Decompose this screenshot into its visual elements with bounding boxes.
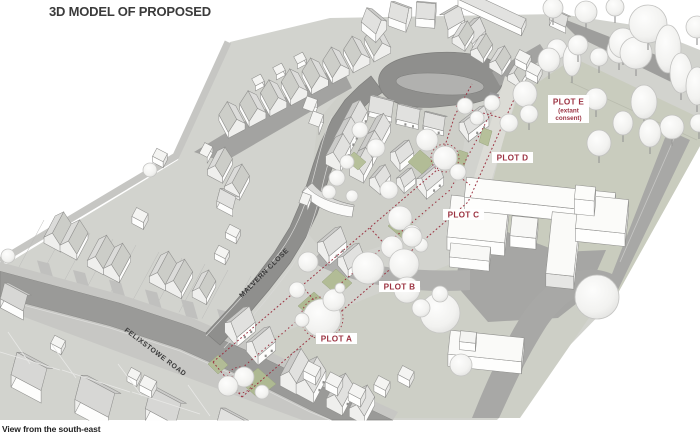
svg-text:PLOT A: PLOT A xyxy=(321,335,353,344)
svg-text:consent): consent) xyxy=(555,115,581,122)
svg-text:PLOT C: PLOT C xyxy=(448,211,480,220)
svg-text:PLOT E: PLOT E xyxy=(553,98,585,107)
svg-text:PLOT D: PLOT D xyxy=(497,154,529,163)
svg-text:(extant: (extant xyxy=(558,108,580,115)
svg-text:PLOT B: PLOT B xyxy=(384,283,416,292)
